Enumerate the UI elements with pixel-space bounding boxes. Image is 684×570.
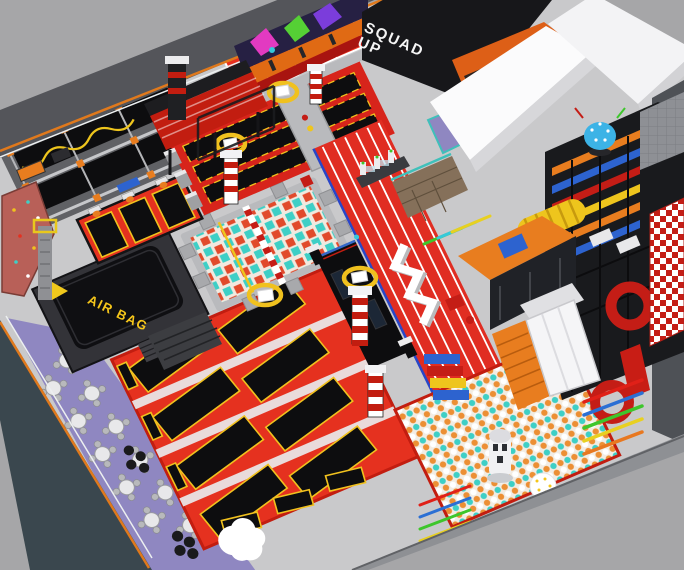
- render-canvas: [0, 0, 684, 570]
- striped-tower: [365, 365, 386, 417]
- checker-wall: [650, 198, 684, 346]
- striped-tower: [307, 64, 325, 104]
- rocket-tower: [487, 429, 513, 483]
- trampoline-park-render: SQUAD UP AIR BAG: [0, 0, 684, 570]
